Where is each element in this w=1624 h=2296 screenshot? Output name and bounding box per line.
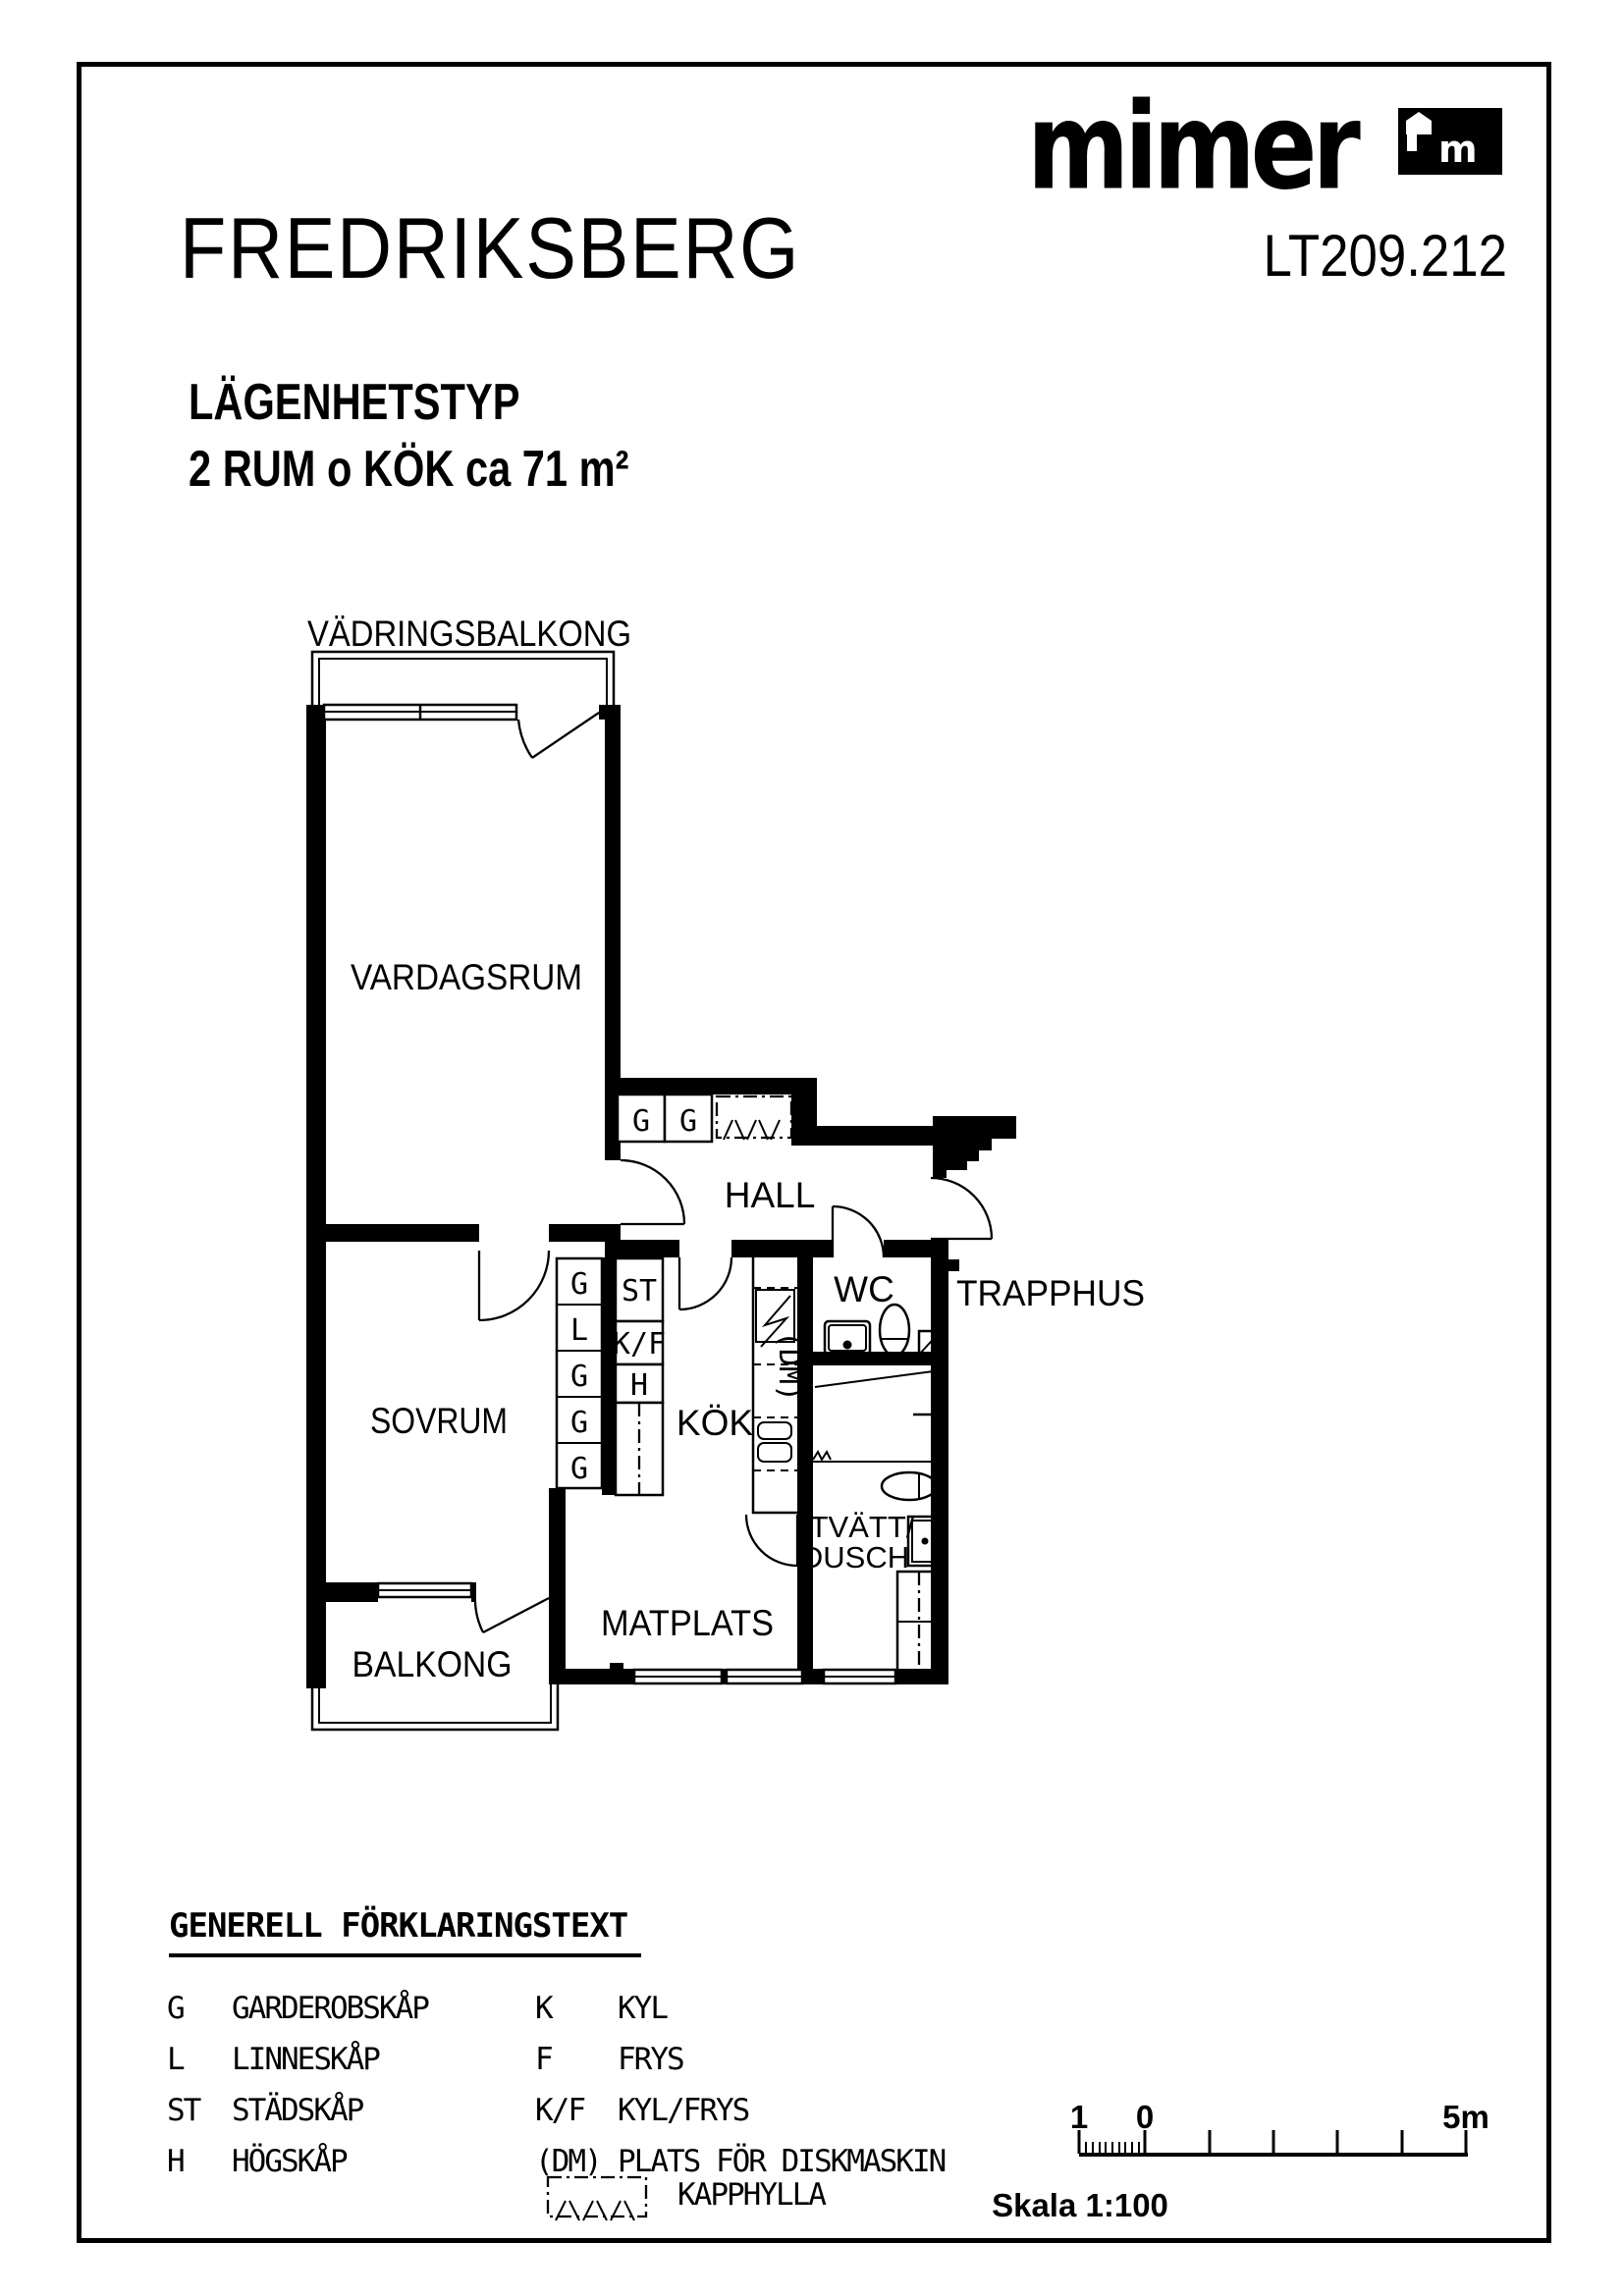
label-trapphus: TRAPPHUS [956, 1273, 1145, 1313]
label-matplats: MATPLATS [601, 1603, 774, 1643]
vadringsbalkong-railing [312, 652, 614, 705]
wc-toilet [880, 1305, 909, 1356]
label-wc: WC [834, 1269, 894, 1309]
scale-bar: 1 0 5m Skala 1:100 [992, 2099, 1489, 2223]
scale-label-0: 0 [1136, 2099, 1154, 2135]
scale-label-1: 1 [1070, 2099, 1088, 2135]
shaft-and-passage [813, 1370, 947, 1462]
wc-basin [825, 1321, 870, 1355]
sink-2 [758, 1443, 791, 1462]
balcony-railings [312, 652, 614, 1730]
entry-pillar [933, 1116, 1016, 1178]
legend-item-h: HHÖGSKÅP [167, 2144, 347, 2179]
label-hall: HALL [725, 1175, 816, 1215]
legend-item-k: KKYL [535, 1991, 667, 2026]
svg-text:G: G [679, 1104, 697, 1139]
wc-fixtures [825, 1305, 941, 1356]
label-kok: KÖK [677, 1403, 753, 1443]
window-matplats-1 [634, 1670, 722, 1683]
door-wc [833, 1206, 884, 1257]
window-tvatt [824, 1670, 895, 1683]
door-entry [931, 1178, 992, 1239]
svg-text:G: G [632, 1104, 650, 1139]
label-balkong: BALKONG [352, 1644, 513, 1684]
label-tvatt-2: DUSCH [801, 1540, 909, 1575]
svg-text:(DM): (DM) [772, 1331, 806, 1402]
door-vardagsrum-hall [621, 1160, 684, 1224]
svg-text:G: G [570, 1452, 588, 1486]
hall-kapphylla-symbol [717, 1096, 791, 1140]
drawing-sheet: FREDRIKSBERG mimer m LT209.212 LÄGENHETS… [0, 0, 1624, 2296]
label-sovrum: SOVRUM [370, 1401, 508, 1441]
door-vadringsbalkong [518, 713, 599, 758]
door-balkong [475, 1598, 549, 1632]
svg-text:K/F: K/F [613, 1327, 666, 1362]
window-matplats-2 [727, 1670, 802, 1683]
svg-text:G: G [570, 1267, 588, 1302]
svg-text:H: H [630, 1368, 648, 1403]
svg-text:G: G [570, 1406, 588, 1440]
label-vadringsbalkong: VÄDRINGSBALKONG [307, 614, 631, 654]
tap-squiggle [813, 1452, 831, 1460]
legend-item-f: FFRYS [535, 2042, 683, 2077]
door-sovrum [479, 1251, 549, 1320]
window-sovrum [378, 1583, 471, 1597]
legend-item-g: GGARDEROBSKÅP [167, 1991, 428, 2026]
scale-label-5m: 5m [1442, 2099, 1489, 2135]
legend-item-dm: (DM)PLATS FÖR DISKMASKIN [535, 2144, 945, 2179]
svg-text:ST: ST [622, 1274, 657, 1308]
svg-text:G: G [570, 1360, 588, 1394]
door-kok [679, 1257, 731, 1309]
window-vardagsrum [324, 705, 516, 720]
svg-text:L: L [570, 1313, 588, 1348]
room-labels: VÄDRINGSBALKONG VARDAGSRUM HALL WC TRAPP… [307, 614, 1145, 1684]
door-kok-matplats [746, 1515, 797, 1566]
legend-heading: GENERELL FÖRKLARINGSTEXT [169, 1906, 641, 1957]
label-tvatt-1: TVÄTT/ [810, 1510, 915, 1544]
shower-tray [882, 1472, 937, 1500]
legend-item-kf: K/FKYL/FRYS [535, 2093, 748, 2128]
legend-item-l: LLINNESKÅP [167, 2042, 379, 2077]
minor-ticks [1085, 2142, 1140, 2154]
scale-caption: Skala 1:100 [992, 2187, 1168, 2223]
legend-kapphylla-label: KAPPHYLLA [677, 2177, 825, 2213]
legend-kapphylla-symbol [548, 2177, 646, 2220]
dm-marker: (DM) [772, 1331, 806, 1402]
label-vardagsrum: VARDAGSRUM [351, 957, 582, 997]
legend-item-st: STSTÄDSKÅP [167, 2093, 362, 2128]
shaft-diagonal [815, 1370, 941, 1387]
sink-1 [758, 1422, 791, 1439]
